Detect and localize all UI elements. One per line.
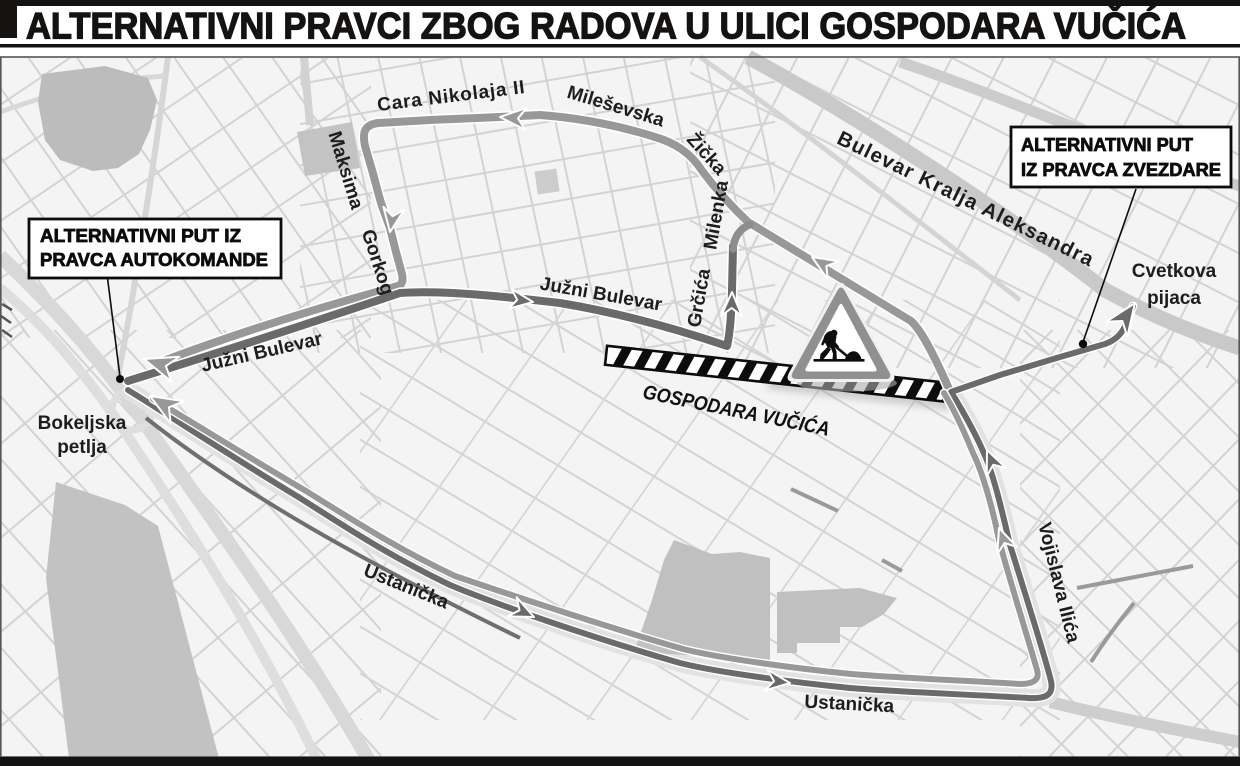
svg-text:IZ PRAVCA ZVEZDARE: IZ PRAVCA ZVEZDARE (1021, 159, 1221, 180)
svg-text:PRAVCA AUTOKOMANDE: PRAVCA AUTOKOMANDE (40, 249, 268, 270)
svg-text:petlja: petlja (57, 437, 107, 458)
svg-text:pijaca: pijaca (1147, 288, 1201, 309)
svg-text:ALTERNATIVNI PUT IZ: ALTERNATIVNI PUT IZ (40, 225, 241, 246)
svg-text:ALTERNATIVNI PRAVCI ZBOG RADOV: ALTERNATIVNI PRAVCI ZBOG RADOVA U ULICI … (26, 5, 1186, 47)
svg-text:Cvetkova: Cvetkova (1132, 261, 1217, 282)
svg-text:Bokeljska: Bokeljska (38, 413, 127, 434)
svg-text:ALTERNATIVNI PUT: ALTERNATIVNI PUT (1021, 134, 1194, 155)
